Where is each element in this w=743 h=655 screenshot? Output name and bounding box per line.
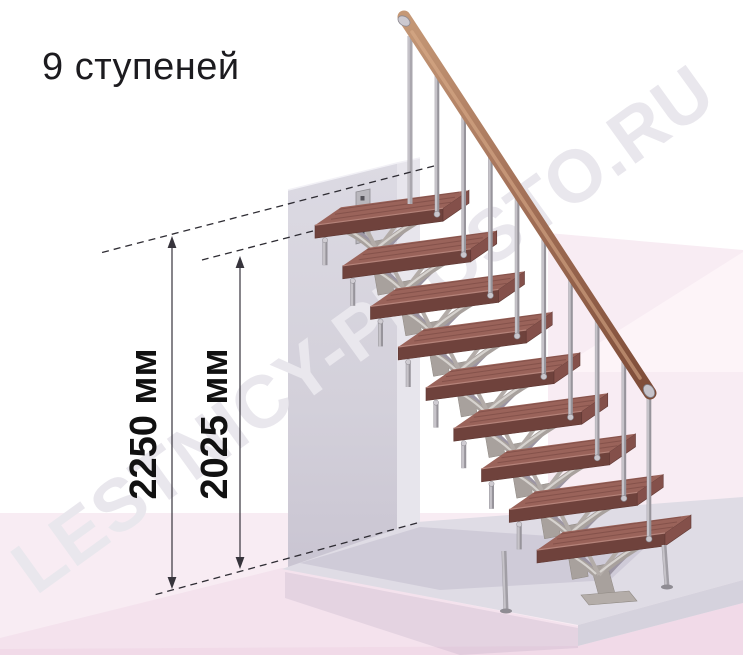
leg-foot [500,609,512,614]
baluster-base-ball [568,414,574,420]
tread-link-post [322,238,327,266]
illustration-canvas: LESTNICY-PROSTO.RU 2250 мм 2025 мм 9 сту… [0,0,743,655]
baluster-base-ball [514,333,520,339]
post-cap [433,400,438,405]
baluster-base-ball [621,495,627,501]
tread-link-post [378,319,383,347]
baluster-base-ball [594,455,600,461]
tread-link-post [489,481,494,509]
baluster-base-ball [487,292,493,298]
post-cap [350,278,355,283]
tread-link-post [517,522,522,550]
dimension-label-total: 2250 мм [123,348,165,499]
post-cap [489,481,494,486]
post-cap [406,359,411,364]
page-title: 9 ступеней [42,46,240,88]
leg-foot [661,585,673,590]
staircase-scene: LESTNICY-PROSTO.RU 2250 мм 2025 мм 9 сту… [0,0,743,655]
post-cap [461,441,466,446]
baluster-base-ball [541,374,547,380]
tread-link-post [433,400,438,428]
post-cap [378,319,383,324]
baluster-base-ball [434,211,440,217]
post-cap [322,238,327,243]
tread-link-post [461,441,466,469]
dimension-label-flight: 2025 мм [194,348,236,499]
baluster-base-ball [646,536,652,542]
baluster-base-ball [461,252,467,258]
post-cap [517,522,522,527]
tread-link-post [406,359,411,387]
mount-plate-hole [361,196,365,201]
tread-link-post [350,278,355,306]
